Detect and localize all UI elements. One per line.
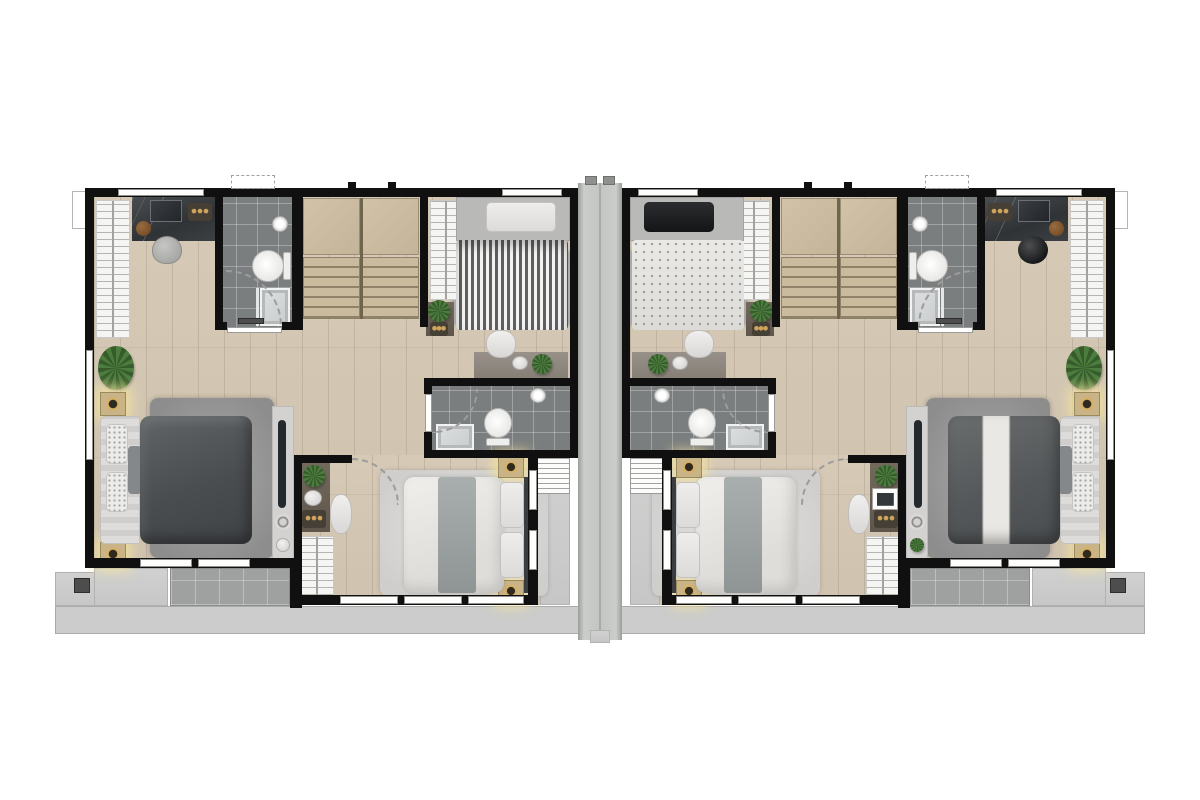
bedroom2-lamp-top-left <box>498 456 524 478</box>
bath-top-wall-right-left <box>292 197 303 330</box>
window-top-b-right <box>638 189 698 196</box>
vanity-chair-right <box>1018 236 1048 264</box>
party-wall-divider <box>578 183 622 640</box>
master-bench-left <box>278 420 286 508</box>
bedroom2-pillow-b-left <box>500 532 524 578</box>
bedroom3-sidetable-tray-right <box>752 322 770 336</box>
bedroom2-bed-runner-left <box>438 477 476 593</box>
bedroom2-tablet-right <box>872 488 898 510</box>
bedroom3-duvet-left <box>456 240 568 330</box>
master-lamp-top-right <box>1074 392 1100 416</box>
bedroom2-chair-left <box>330 494 352 534</box>
stair-landing-a-right <box>840 198 897 255</box>
master-disc-left <box>275 514 291 530</box>
bedroom2-pillow-b-right <box>676 532 700 578</box>
stair-wall-right <box>772 197 780 327</box>
bedroom2-desk-plate-left <box>304 490 322 506</box>
window-master-b-right <box>950 559 1002 567</box>
stair-flight-b-left <box>362 257 419 319</box>
vent-tick-a-right <box>844 182 852 189</box>
bath-top-wall-bottom-b-left <box>282 322 303 330</box>
bath-top-wall-left-left <box>215 197 223 330</box>
bath-mid-wall-left-a-left <box>424 378 432 394</box>
stair-rail-right <box>837 198 840 319</box>
window-master-b-left <box>198 559 250 567</box>
stair-flight-a-right <box>840 257 897 319</box>
master-wardrobe-left <box>96 200 130 338</box>
bedroom2-wardrobe-left <box>300 536 334 602</box>
stair-rail-left <box>360 198 363 319</box>
vanity-chair-left <box>152 236 182 264</box>
master-wall-bottom-left <box>85 558 302 568</box>
bedroom2-desk-plant-left <box>303 465 325 487</box>
ac-unit-right <box>630 456 664 494</box>
vanity-tray-left <box>188 203 212 221</box>
bedroom3-duvet-right <box>632 240 744 330</box>
drain-box-right <box>1110 578 1126 593</box>
vent-tick-b-right <box>804 182 812 189</box>
window-bedroom2-b-right <box>738 596 796 604</box>
vanity-stool-right <box>1049 221 1064 236</box>
bedroom3-sidetable-tray-left <box>430 322 448 336</box>
door-bath-mid-left <box>425 394 432 432</box>
window-master-a-left <box>140 559 192 567</box>
window-balconyside-a-left <box>529 470 537 510</box>
stair-landing-b-left <box>362 198 419 255</box>
bedroom2-wall-top-right <box>848 455 906 463</box>
bath-top-wall-left-right <box>977 197 985 330</box>
window-bedroom2-c-left <box>468 596 524 604</box>
window-bedroom2-a-left <box>340 596 398 604</box>
bedroom3-pillow-left <box>486 202 556 232</box>
bedroom3-pillow-right <box>644 202 714 232</box>
vanity-stool-left <box>136 221 151 236</box>
party-side-wall-right <box>622 188 630 458</box>
bath-top-toilet-left <box>252 250 284 282</box>
bedroom2-desk-tray-right <box>874 510 898 528</box>
vanity-mirror-right <box>1018 200 1050 222</box>
bath-top-wall-right-right <box>897 197 908 330</box>
master-bed-pillow-b-right <box>1072 472 1094 512</box>
bedroom2-desk-plant-right <box>875 465 897 487</box>
awning-dashed-left <box>231 175 275 189</box>
bedroom3-chair-right <box>684 330 714 358</box>
bath-mid-toilet-tank-right <box>690 438 714 446</box>
bedroom2-desk-tray-left <box>302 510 326 528</box>
master-bed-pillow-a-left <box>106 424 128 464</box>
awning-dashed-right <box>925 175 969 189</box>
ac-unit-left <box>536 456 570 494</box>
vanity-tray-right <box>988 203 1012 221</box>
bedroom3-sidetable-plant-left <box>428 300 450 322</box>
bedroom3-desk-plate-left <box>512 356 528 370</box>
stair-landing-a-left <box>303 198 360 255</box>
divider-cap-b <box>603 176 615 185</box>
bedroom3-desk-plate-right <box>672 356 688 370</box>
floor-plan <box>0 0 1200 800</box>
bath-mid-sink-right <box>654 388 670 403</box>
corner-plant-left <box>98 346 134 390</box>
bedroom2-chair-right <box>848 494 870 534</box>
window-balconyside-b-left <box>529 530 537 570</box>
bedroom3-chair-left <box>486 330 516 358</box>
bath-mid-wall-bottom-right <box>630 450 776 458</box>
window-side-right <box>1107 350 1114 460</box>
bath-mid-toilet-right <box>688 408 716 438</box>
master-balcony-tiled-left <box>170 568 290 606</box>
bath-mid-wall-left-b-left <box>424 432 432 458</box>
bedroom2-wardrobe-right <box>866 536 900 602</box>
window-master-a-right <box>1008 559 1060 567</box>
bath-mid-wall-top-right <box>630 378 776 386</box>
master-lamp-top-left <box>100 392 126 416</box>
corner-plant-right <box>1066 346 1102 390</box>
master-bed-pillow-a-right <box>1072 424 1094 464</box>
window-balconyside-a-right <box>663 470 671 510</box>
master-disc-b-left <box>276 538 290 552</box>
window-bedroom2-c-right <box>676 596 732 604</box>
window-bedroom2-b-left <box>404 596 462 604</box>
divider-foot <box>590 630 610 643</box>
bath-mid-wall-left-a-right <box>768 378 776 394</box>
bath-mid-toilet-left <box>484 408 512 438</box>
bedroom2-lamp-top-right <box>676 456 702 478</box>
vent-tick-a-left <box>348 182 356 189</box>
master-bed-duvet-right <box>948 416 1060 544</box>
bedroom3-desk-plant-left <box>532 354 552 374</box>
door-bath-mid-right <box>768 394 775 432</box>
bath-mid-wall-bottom-left <box>424 450 570 458</box>
bedroom2-wall-top-left <box>294 455 352 463</box>
master-bed-duvet-left <box>140 416 252 544</box>
bath-mid-toilet-tank-left <box>486 438 510 446</box>
drain-box-left <box>74 578 90 593</box>
window-top-b-left <box>502 189 562 196</box>
bath-mid-wall-top-left <box>424 378 570 386</box>
bedroom3-sidetable-plant-right <box>750 300 772 322</box>
bath-top-toilet-tank-left <box>283 252 291 280</box>
window-top-a-left <box>118 189 204 196</box>
master-wardrobe-right <box>1070 200 1104 338</box>
stair-flight-b-right <box>781 257 838 319</box>
master-bed-pillow-b-left <box>106 472 128 512</box>
stair-wall-left <box>420 197 428 327</box>
stair-landing-b-right <box>781 198 838 255</box>
party-side-wall-left <box>570 188 578 458</box>
master-disc-right <box>909 514 925 530</box>
door-bath-top-left <box>227 327 282 333</box>
master-bench-right <box>914 420 922 508</box>
bath-top-wall-bottom-b-right <box>897 322 918 330</box>
door-bath-top-right <box>918 327 973 333</box>
bath-mid-wall-left-b-right <box>768 432 776 458</box>
bath-top-toilet-right <box>916 250 948 282</box>
master-balcony-plain-right <box>1032 568 1106 606</box>
window-bedroom2-a-right <box>802 596 860 604</box>
master-wall-bottom-right <box>898 558 1115 568</box>
bedroom3-desk-plant-right <box>648 354 668 374</box>
master-disc-b-right <box>910 538 924 552</box>
bedroom2-pillow-a-right <box>676 482 700 528</box>
master-bed-cushion-right <box>1058 446 1072 494</box>
vanity-mirror-left <box>150 200 182 222</box>
bath-top-sink-left <box>272 216 288 232</box>
window-top-a-right <box>996 189 1082 196</box>
window-balconyside-b-right <box>663 530 671 570</box>
master-balcony-plain-left <box>94 568 168 606</box>
bath-top-sink-right <box>912 216 928 232</box>
vent-tick-b-left <box>388 182 396 189</box>
master-balcony-tiled-right <box>910 568 1030 606</box>
bath-mid-sink-left <box>530 388 546 403</box>
bath-top-wall-bottom-a-right <box>973 322 985 330</box>
stair-flight-a-left <box>303 257 360 319</box>
bedroom2-pillow-a-left <box>500 482 524 528</box>
window-side-left <box>86 350 93 460</box>
divider-cap-a <box>585 176 597 185</box>
bedroom2-bed-runner-right <box>724 477 762 593</box>
